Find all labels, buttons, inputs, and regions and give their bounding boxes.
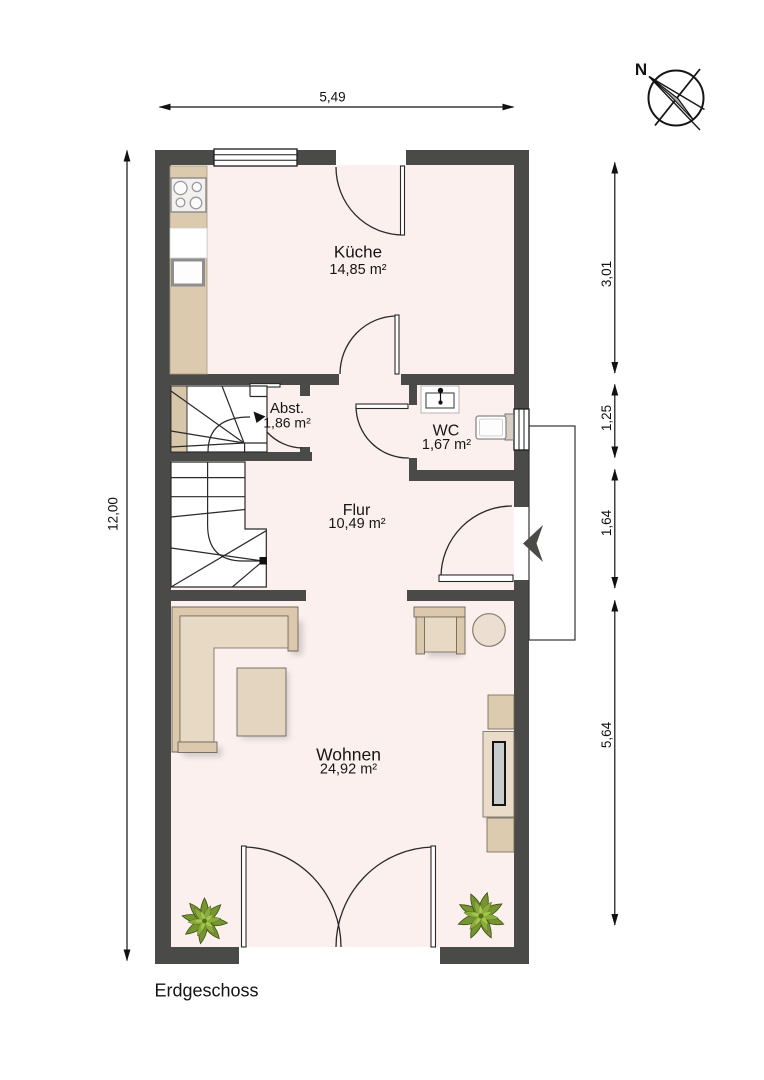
svg-text:Küche: Küche xyxy=(334,243,382,262)
svg-text:1,25: 1,25 xyxy=(599,405,614,431)
svg-text:24,92 m²: 24,92 m² xyxy=(320,762,377,778)
svg-text:5,64: 5,64 xyxy=(599,721,614,748)
svg-text:1,64: 1,64 xyxy=(599,509,614,536)
svg-text:12,00: 12,00 xyxy=(106,497,121,531)
svg-text:5,49: 5,49 xyxy=(319,90,345,105)
svg-text:1,67 m²: 1,67 m² xyxy=(422,437,471,453)
svg-text:1,86 m²: 1,86 m² xyxy=(263,415,311,431)
svg-text:14,85 m²: 14,85 m² xyxy=(329,262,386,278)
svg-text:Erdgeschoss: Erdgeschoss xyxy=(155,981,259,1001)
svg-text:N: N xyxy=(635,60,647,79)
svg-text:10,49 m²: 10,49 m² xyxy=(328,516,385,532)
svg-text:3,01: 3,01 xyxy=(599,261,614,287)
